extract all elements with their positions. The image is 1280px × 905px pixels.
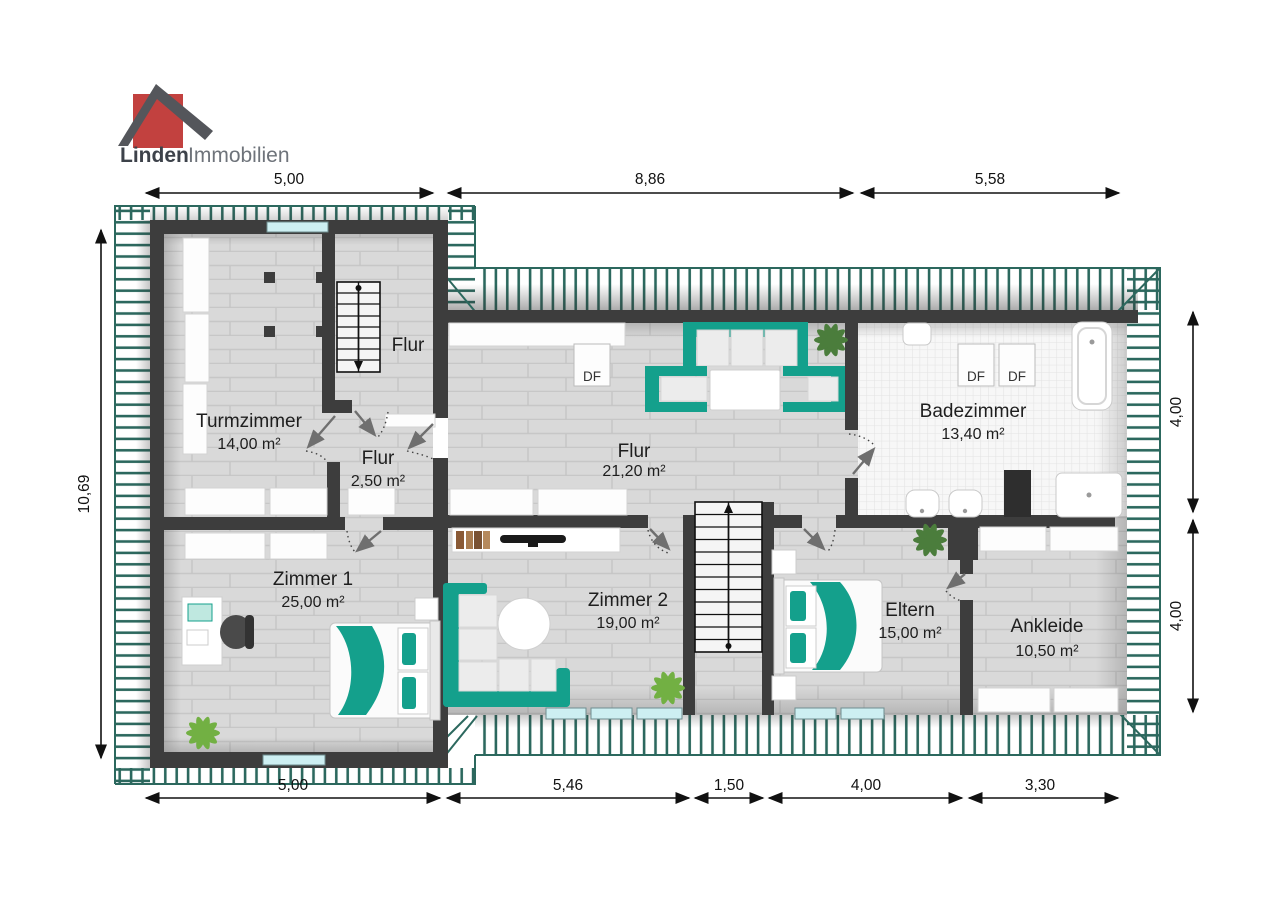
dim-right-2: 4,00: [1168, 601, 1185, 632]
sideboard-icon: [450, 489, 533, 515]
room-area-zimmer2: 19,00 m²: [596, 615, 660, 632]
coffee-table-icon: [710, 370, 780, 410]
wall-zimmer1-top-a: [164, 517, 327, 530]
wall-stair-enclosure: [322, 232, 335, 412]
closet-icon: [1050, 527, 1118, 551]
wall-eltern-top-b: [836, 515, 858, 528]
sofa-icon: [683, 322, 808, 368]
bathtub-icon: [1072, 322, 1112, 410]
wall-stair-left: [683, 515, 695, 715]
room-area-flur-main: 21,20 m²: [602, 463, 666, 480]
brand-name-light: Immobilien: [188, 144, 290, 167]
stairs-tower: [337, 282, 380, 372]
sideboard-icon: [348, 488, 395, 515]
brand-name-bold: Linden: [120, 144, 189, 167]
dim-bottom-1: 5,00: [278, 777, 309, 794]
dim-right-1: 4,00: [1168, 397, 1185, 428]
room-area-turmzimmer: 14,00 m²: [217, 436, 281, 453]
wall-stub-flur: [322, 400, 352, 413]
window-tower-top: [267, 222, 328, 232]
wall-eltern-top-a: [774, 515, 802, 528]
wall-zimmer1-top-c: [383, 517, 433, 530]
shelf-icon: [385, 414, 435, 427]
room-label-flur-main: Flur: [618, 441, 651, 462]
shower-icon: [1056, 473, 1122, 517]
room-label-turmzimmer: Turmzimmer: [196, 411, 303, 432]
skylight-label: DF: [967, 369, 985, 384]
wall-ankleide-upper: [960, 560, 973, 574]
wall-zimmer2-top: [448, 515, 648, 528]
sideboard-icon: [538, 489, 627, 515]
closet-icon: [980, 527, 1046, 551]
column: [264, 326, 275, 337]
floor-plan-page: Linden Immobilien: [0, 0, 1280, 905]
room-area-flur-small: 2,50 m²: [351, 473, 406, 490]
wall-main-top: [448, 310, 1138, 323]
room-label-zimmer1: Zimmer 1: [273, 569, 353, 590]
wall-bath-left-lower: [845, 478, 858, 517]
dim-bottom-2: 5,46: [553, 777, 583, 794]
wardrobe-icon: [185, 314, 209, 382]
room-area-badezimmer: 13,40 m²: [941, 426, 1005, 443]
nightstand-icon: [415, 598, 438, 620]
armchair-icon: [645, 366, 707, 412]
wardrobe-icon: [183, 238, 209, 312]
column: [264, 272, 275, 283]
room-label-eltern: Eltern: [885, 600, 935, 621]
dim-bottom-5: 3,30: [1025, 777, 1056, 794]
sideboard-icon: [185, 488, 265, 515]
wall-flur-small: [327, 462, 340, 517]
sink-icon: [906, 490, 939, 517]
stairs-main: [695, 502, 762, 652]
sink-icon: [949, 490, 982, 517]
wall-zimmer1-top-b: [327, 517, 345, 530]
wall-ankleide-stub: [948, 528, 978, 560]
floor-plan-drawing: Linden Immobilien: [0, 0, 1280, 905]
room-area-zimmer1: 25,00 m²: [281, 594, 345, 611]
tv-icon: [500, 535, 566, 543]
room-label-zimmer2: Zimmer 2: [588, 590, 668, 611]
dim-top-3: 5,58: [975, 171, 1005, 188]
closet-icon: [1054, 688, 1118, 712]
column: [316, 272, 327, 283]
room-area-eltern: 15,00 m²: [878, 625, 942, 642]
room-label-ankleide: Ankleide: [1011, 616, 1084, 637]
dim-left: 10,69: [76, 475, 93, 514]
skylight-label: DF: [583, 369, 601, 384]
sideboard-icon: [270, 488, 327, 515]
column: [316, 326, 327, 337]
knee-window: [546, 708, 586, 719]
dim-bottom-3: 1,50: [714, 777, 745, 794]
knee-window: [841, 708, 884, 719]
toilet-icon: [903, 323, 931, 345]
tv-sideboard-icon: [452, 528, 620, 552]
nightstand-icon: [772, 550, 796, 574]
room-label-badezimmer: Badezimmer: [920, 401, 1027, 422]
wall-ankleide-lower: [960, 600, 973, 715]
dim-top-1: 5,00: [274, 171, 305, 188]
knee-wall-shelf-icon: [449, 323, 625, 346]
wardrobe-icon: [185, 533, 265, 559]
room-label-flur-small: Flur: [362, 448, 395, 469]
books-icon: [456, 531, 464, 549]
knee-window: [795, 708, 836, 719]
wall-tower-right-upper: [433, 220, 448, 418]
dim-bottom-4: 4,00: [851, 777, 882, 794]
closet-icon: [978, 688, 1050, 712]
knee-window: [591, 708, 632, 719]
round-table-icon: [498, 598, 550, 650]
room-label-flur-upper: Flur: [392, 335, 425, 356]
wardrobe-icon: [270, 533, 327, 559]
window-tower-bottom: [263, 755, 325, 765]
nightstand-icon: [772, 676, 796, 700]
dim-top-2: 8,86: [635, 171, 665, 188]
knee-window: [637, 708, 682, 719]
brand-logo: Linden Immobilien: [118, 84, 290, 167]
skylight-label: DF: [1008, 369, 1026, 384]
chimney-block: [1004, 470, 1031, 517]
room-area-ankleide: 10,50 m²: [1015, 643, 1079, 660]
wall-tower-left: [150, 220, 164, 768]
